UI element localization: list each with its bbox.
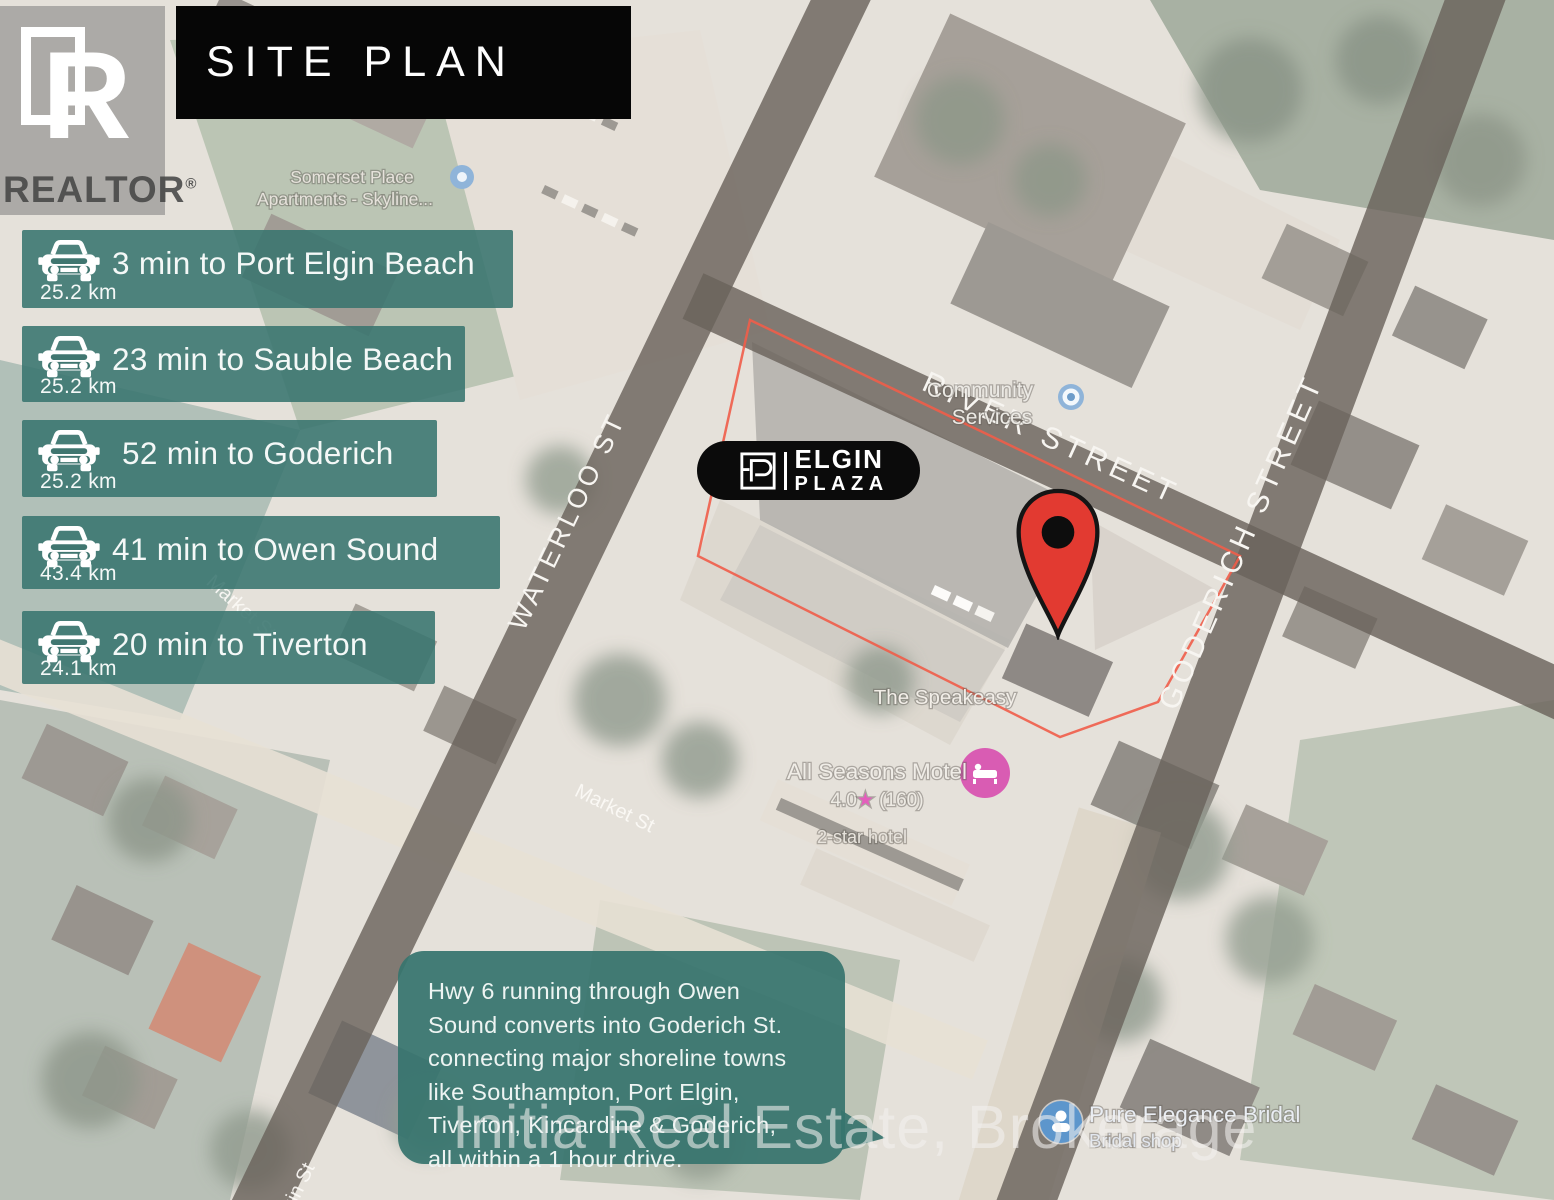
motel-rating: 4.0 <box>830 790 856 811</box>
drive-distance-label: 43.4 km <box>40 562 117 586</box>
drive-distance-label: 25.2 km <box>40 281 117 305</box>
car-icon <box>38 240 100 286</box>
drive-distance-label: 25.2 km <box>40 375 117 399</box>
motel-review-count: (160) <box>874 790 924 811</box>
svg-text:R: R <box>42 27 132 156</box>
motel-star-icon: ★ <box>857 790 874 811</box>
drive-time-label: 3 min to Port Elgin Beach <box>112 236 475 290</box>
drive-time-badge-owen-sound: 41 min to Owen Sound 43.4 km <box>22 516 500 589</box>
plaza-name-line1: ELGIN <box>795 446 889 473</box>
drive-time-badge-sauble-beach: 23 min to Sauble Beach 25.2 km <box>22 326 465 402</box>
elgin-plaza-logo-icon <box>739 450 777 492</box>
community-label-line1: Community <box>927 379 1034 402</box>
motel-type-label: 2-star hotel <box>817 827 907 847</box>
realtor-wordmark: REALTOR® <box>3 169 197 211</box>
divider <box>784 452 787 490</box>
drive-time-label: 23 min to Sauble Beach <box>112 332 453 386</box>
realtor-name: REALTOR <box>3 169 185 210</box>
somerset-label-line2: Apartments - Skyline... <box>257 189 433 209</box>
drive-distance-label: 24.1 km <box>40 657 117 681</box>
site-plan-flyer: WATERLOO ST RIVER STREET GODERICH STREET… <box>0 0 1554 1200</box>
page-title: SITE PLAN <box>176 38 516 87</box>
drive-time-label: 52 min to Goderich <box>122 426 394 480</box>
drive-distance-label: 25.2 km <box>40 470 117 494</box>
motel-name-label: All Seasons Motel <box>787 759 967 784</box>
drive-time-label: 41 min to Owen Sound <box>112 522 438 576</box>
site-plan-banner: SITE PLAN <box>176 6 631 119</box>
plaza-name-line2: PLAZA <box>795 473 889 495</box>
speakeasy-label: The Speakeasy <box>874 686 1017 709</box>
drive-time-badge-tiverton: 20 min to Tiverton 24.1 km <box>22 611 435 684</box>
drive-time-label: 20 min to Tiverton <box>112 617 368 671</box>
community-label-line2: Services <box>952 406 1033 429</box>
somerset-label-line1: Somerset Place <box>290 167 414 187</box>
brokerage-watermark: Initia Real Estate, Brokerage <box>452 1092 1257 1162</box>
elgin-plaza-badge: ELGIN PLAZA <box>697 441 920 500</box>
registered-mark: ® <box>185 176 197 193</box>
realtor-logo-box: R REALTOR® <box>0 6 165 215</box>
realtor-logo: R <box>20 22 142 156</box>
motel-rating-row: 4.0★ (160) <box>830 790 923 811</box>
drive-time-badge-port-elgin-beach: 3 min to Port Elgin Beach 25.2 km <box>22 230 513 308</box>
drive-time-badge-goderich: 52 min to Goderich 25.2 km <box>22 420 437 497</box>
location-pin-icon <box>1010 486 1106 640</box>
